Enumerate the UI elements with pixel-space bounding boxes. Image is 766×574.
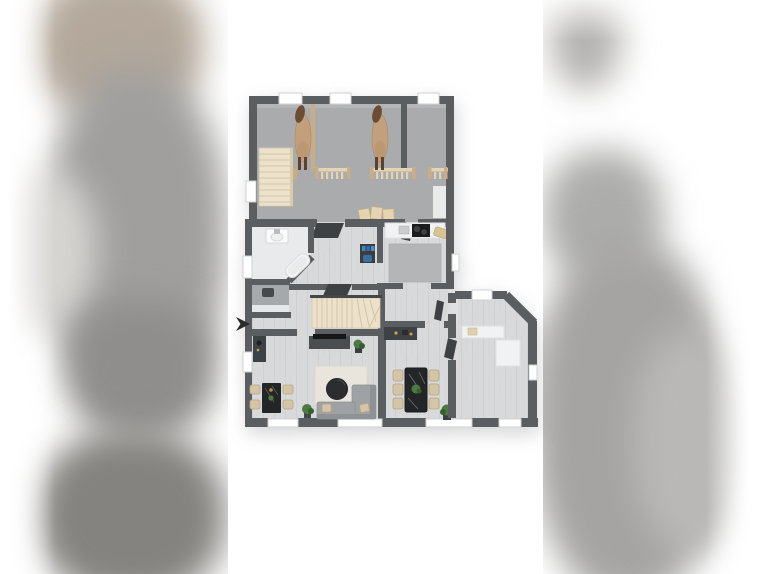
stair-railing: [310, 295, 382, 298]
stable-staircase: [259, 148, 293, 206]
tv: [313, 334, 346, 339]
cushion: [359, 403, 369, 412]
house-staircase: [310, 295, 382, 328]
kitchen-sink: [399, 226, 409, 234]
annex-counter-l: [496, 340, 520, 366]
utility-desk: [360, 244, 375, 263]
wooden-stall-partition: [311, 104, 315, 170]
kitchen-rug: [389, 244, 441, 282]
toilet: [262, 288, 274, 297]
cushion: [322, 404, 331, 412]
floor-plan-image: [0, 0, 766, 574]
lamp: [257, 341, 262, 346]
house-section: [243, 219, 538, 427]
faucet: [274, 229, 280, 234]
bottom-wall: [245, 418, 538, 427]
blue-chair: [363, 255, 372, 262]
coffee-table: [327, 379, 348, 400]
stable-gate-mat: [433, 186, 448, 218]
listing-image-canvas: [0, 0, 766, 574]
stable-section: [246, 93, 454, 223]
stall-divider-wall: [401, 104, 407, 170]
wall-shelf: [253, 336, 266, 362]
